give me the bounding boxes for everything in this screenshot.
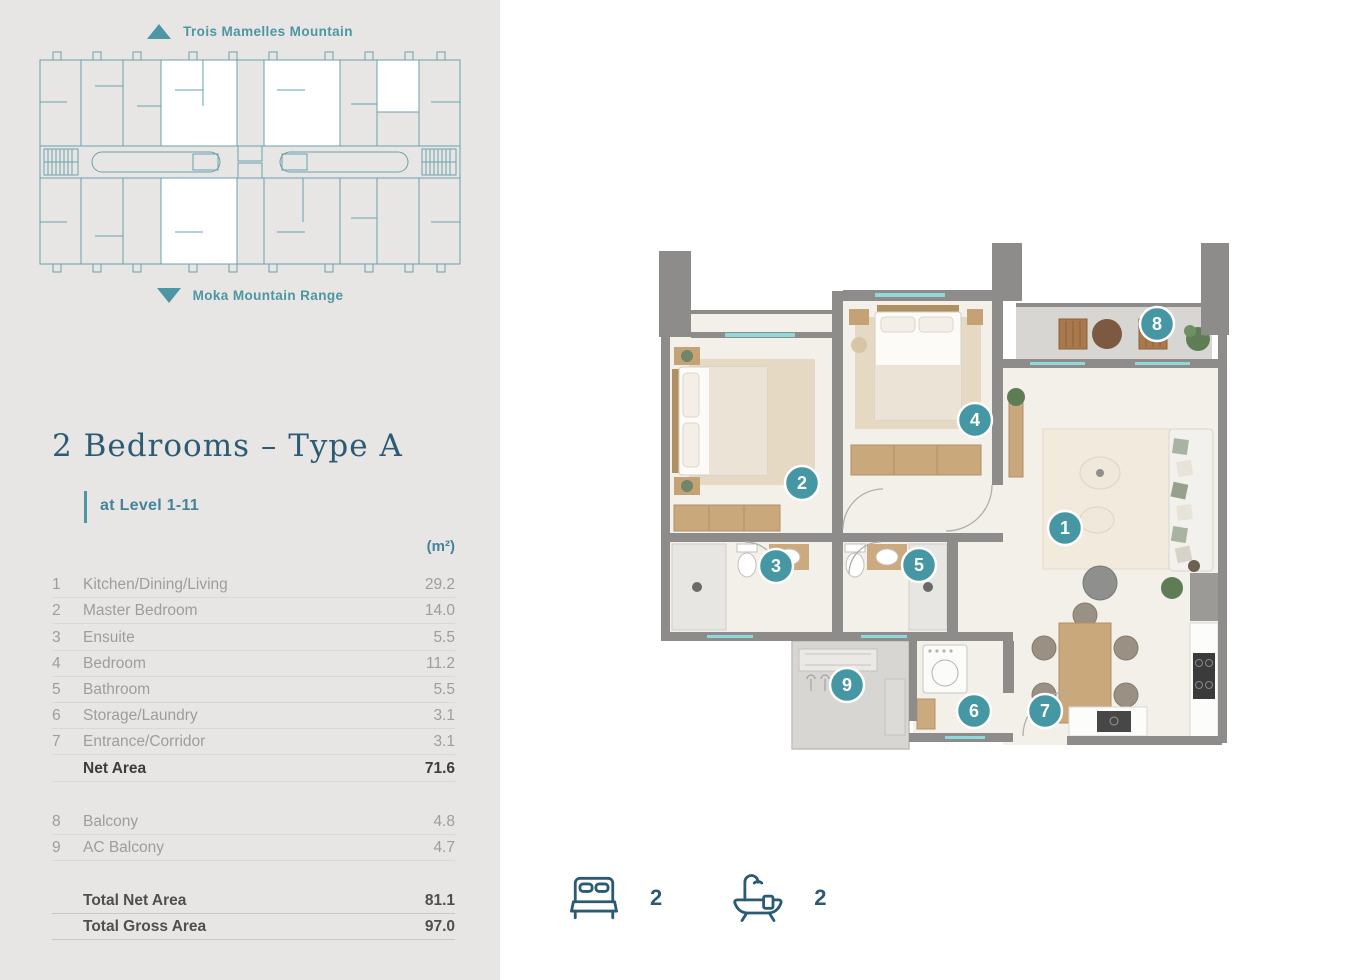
- row-value: 14.0: [425, 602, 455, 620]
- row-value: 5.5: [433, 629, 455, 647]
- svg-text:6: 6: [969, 701, 979, 721]
- bed-icon: [564, 862, 624, 934]
- bedroom-count-group: 2: [564, 862, 662, 934]
- row-label: Total Gross Area: [83, 918, 425, 936]
- row-value: 4.7: [433, 839, 455, 857]
- table-row: 1 Kitchen/Dining/Living 29.2: [52, 572, 455, 598]
- badge-master-bedroom: 2: [785, 466, 819, 500]
- row-number: 7: [52, 733, 83, 751]
- badge-storage: 6: [957, 694, 991, 728]
- site-plan-top-label: Trois Mamelles Mountain: [0, 24, 500, 39]
- row-value: 3.1: [433, 733, 455, 751]
- row-number: 5: [52, 681, 83, 699]
- row-label: Net Area: [83, 760, 425, 778]
- elevator-core-bottom: [238, 163, 262, 178]
- row-label: Storage/Laundry: [83, 707, 433, 725]
- row-value: 3.1: [433, 707, 455, 725]
- row-label: Bathroom: [83, 681, 433, 699]
- badge-bedroom: 4: [958, 403, 992, 437]
- stairs-right: [422, 149, 456, 175]
- corridor-left-core: [193, 154, 218, 170]
- row-value: 81.1: [425, 892, 455, 910]
- row-value: 97.0: [425, 918, 455, 936]
- table-row: 6 Storage/Laundry 3.1: [52, 703, 455, 729]
- page-title: 2 Bedrooms – Type A: [52, 428, 403, 464]
- table-row: 5 Bathroom 5.5: [52, 677, 455, 703]
- corridor-left: [92, 152, 220, 172]
- svg-text:7: 7: [1040, 701, 1050, 721]
- row-number: 1: [52, 576, 83, 594]
- svg-text:5: 5: [914, 555, 924, 575]
- bedroom-count: 2: [650, 885, 662, 911]
- site-plan-top-label-text: Trois Mamelles Mountain: [183, 24, 353, 39]
- page: Trois Mamelles Mountain: [0, 0, 1368, 980]
- badge-balcony: 8: [1140, 307, 1174, 341]
- triangle-down-icon: [157, 288, 181, 303]
- bathroom-count-group: 2: [728, 862, 826, 934]
- table-row: 3 Ensuite 5.5: [52, 624, 455, 650]
- svg-text:8: 8: [1152, 314, 1162, 334]
- total-net-area-row: Total Net Area 81.1: [52, 888, 455, 914]
- net-area-row: Net Area 71.6: [52, 755, 455, 781]
- bathroom-count: 2: [814, 885, 826, 911]
- unit-dividers: [81, 60, 419, 264]
- corridor-right: [280, 152, 408, 172]
- row-value: 11.2: [426, 655, 455, 673]
- bathtub-icon: [728, 862, 788, 934]
- table-row: 9 AC Balcony 4.7: [52, 835, 455, 861]
- elevator-core-top: [238, 146, 262, 161]
- row-number: 6: [52, 707, 83, 725]
- row-value: 4.8: [433, 813, 455, 831]
- row-number: 9: [52, 839, 83, 857]
- row-number: 8: [52, 813, 83, 831]
- area-table: (m²) 1 Kitchen/Dining/Living 29.2 2 Mast…: [52, 538, 455, 940]
- unit-header: (m²): [52, 538, 455, 555]
- badge-ensuite: 3: [759, 549, 793, 583]
- svg-text:1: 1: [1060, 518, 1070, 538]
- table-row: 8 Balcony 4.8: [52, 809, 455, 835]
- row-label: Entrance/Corridor: [83, 733, 433, 751]
- row-label: Bedroom: [83, 655, 426, 673]
- row-label: Ensuite: [83, 629, 433, 647]
- total-gross-area-row: Total Gross Area 97.0: [52, 914, 455, 940]
- stairs-left: [44, 149, 78, 175]
- highlighted-units: [161, 60, 419, 264]
- sidebar: Trois Mamelles Mountain: [0, 0, 500, 980]
- table-gap: [52, 861, 455, 888]
- site-plan-bottom-label-text: Moka Mountain Range: [193, 288, 344, 303]
- svg-text:9: 9: [842, 675, 852, 695]
- row-label: Kitchen/Dining/Living: [83, 576, 425, 594]
- row-number: 4: [52, 655, 83, 673]
- row-value: 71.6: [425, 760, 455, 778]
- badge-living: 1: [1048, 511, 1082, 545]
- bedroom-furniture: [849, 305, 983, 475]
- badge-ac-balcony: 9: [830, 668, 864, 702]
- row-value: 5.5: [433, 681, 455, 699]
- triangle-up-icon: [147, 24, 171, 39]
- site-plan-bottom-label: Moka Mountain Range: [0, 288, 500, 303]
- svg-text:2: 2: [797, 473, 807, 493]
- legend: 2 2: [564, 862, 827, 934]
- table-gap: [52, 782, 455, 809]
- building-key-plan: [33, 46, 467, 278]
- corridor-right-core: [282, 154, 307, 170]
- table-row: 7 Entrance/Corridor 3.1: [52, 729, 455, 755]
- badge-bathroom: 5: [902, 548, 936, 582]
- row-label: Balcony: [83, 813, 433, 831]
- row-label: AC Balcony: [83, 839, 433, 857]
- badge-entrance: 7: [1028, 694, 1062, 728]
- row-number: 3: [52, 629, 83, 647]
- svg-text:4: 4: [970, 410, 980, 430]
- row-number: 2: [52, 602, 83, 620]
- apartment-floor-plan: 1 2 3 4 5 6 7 8 9: [645, 233, 1245, 773]
- floorplan-panel: 1 2 3 4 5 6 7 8 9: [500, 0, 1368, 980]
- table-row: 4 Bedroom 11.2: [52, 651, 455, 677]
- row-value: 29.2: [425, 576, 455, 594]
- row-label: Master Bedroom: [83, 602, 425, 620]
- row-label: Total Net Area: [83, 892, 425, 910]
- level-subtitle: at Level 1-11: [84, 491, 199, 523]
- svg-text:3: 3: [771, 556, 781, 576]
- table-row: 2 Master Bedroom 14.0: [52, 598, 455, 624]
